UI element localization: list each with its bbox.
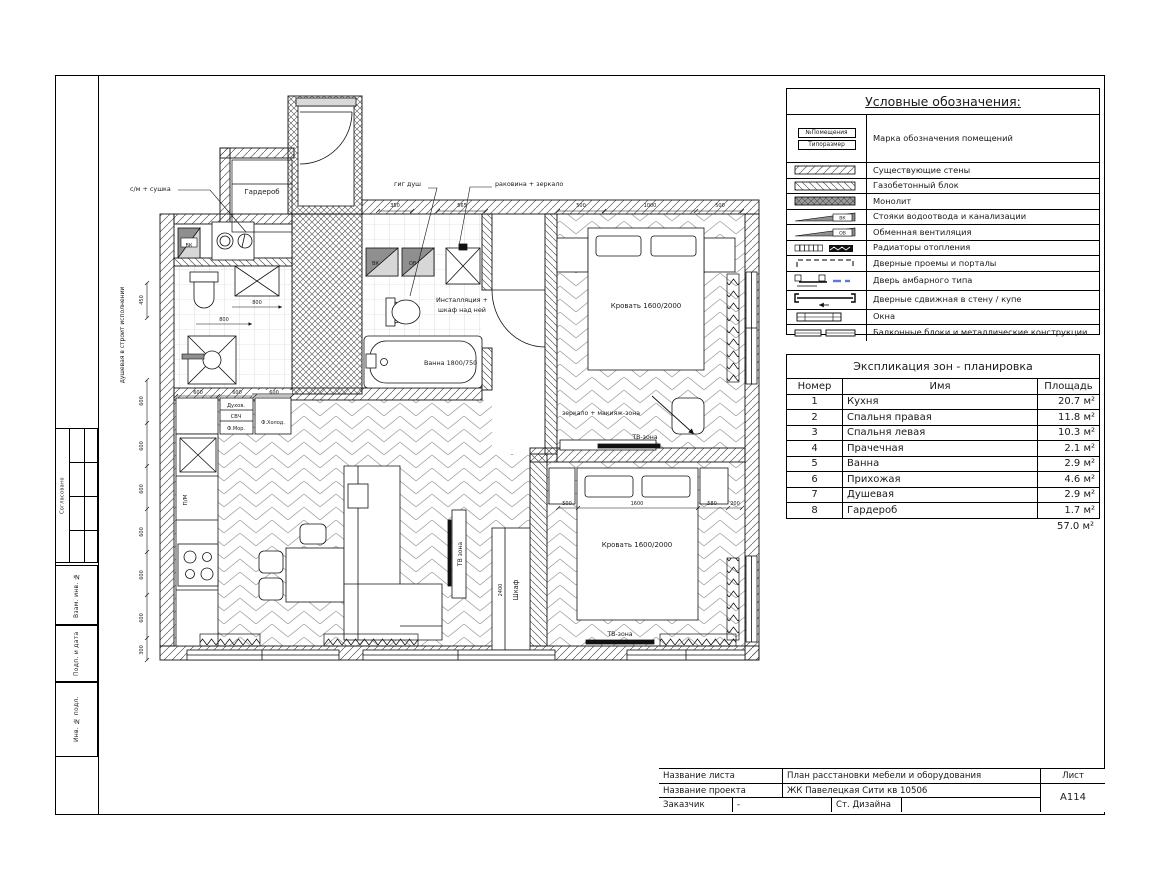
dim-565: 565 (457, 203, 467, 209)
zones-table-title: Экспликация зон - планировка (786, 354, 1100, 378)
existing-walls-icon (793, 164, 861, 176)
floor-plan: ВК (100, 78, 790, 690)
label-installation-2: шкаф над ней (438, 306, 486, 314)
sheet-name-value: План расстановки мебели и оборудования (782, 768, 1040, 783)
client-label: Заказчик (659, 797, 732, 812)
stamp-inv-box: Инв. № подл. (55, 682, 98, 757)
gasblock-icon (793, 180, 861, 192)
legend-title: Условные обозначения: (787, 89, 1099, 115)
label-oven: Духов. (227, 403, 245, 409)
dim-500-a: 500 (576, 203, 586, 209)
label-wardrobe-cab: Шкаф (512, 579, 520, 600)
legend-row-walls: Существующие стены (787, 163, 1099, 179)
legend-row-ov: ОВ Обменная вентиляция (787, 225, 1099, 241)
label-shower-note: душевая в строит исполнении (119, 287, 126, 384)
frame-margin-line (98, 75, 99, 815)
dim-600-5: 600 (139, 570, 145, 580)
legend-row-gasblock: Газобетонный блок (787, 179, 1099, 195)
label-freezer: Ф.Мор. (227, 426, 245, 432)
zones-header-row: Номер Имя Площадь (787, 379, 1100, 395)
ventilation-icon: ОВ (793, 226, 861, 238)
legend-row-sliding-door: Дверные сдвижная в стену / купе (787, 291, 1099, 310)
stamp-vzam-label: Взам. инв. № (56, 566, 97, 624)
label-mirror-makeup: зеркало + макияж-зона (562, 410, 640, 417)
table-row: 3Спальня левая10.3 м² (787, 425, 1100, 441)
dim-600-k1: 600 (193, 390, 203, 396)
stamp-approved-label: Согласовано (56, 429, 69, 562)
label-bed-left: Кровать 1600/2000 (602, 541, 673, 549)
zones-total: 57.0 м² (786, 519, 1100, 532)
zones-table: Экспликация зон - планировка Номер Имя П… (786, 354, 1100, 532)
vk-shaft-label: ВК (186, 243, 193, 249)
stamp-inv-label: Инв. № подл. (56, 683, 97, 756)
sheet-label: Лист (1040, 768, 1105, 783)
legend-row-doorways: Дверные проемы и порталы (787, 256, 1099, 272)
stamp-podp-label: Подп. и дата (56, 626, 97, 681)
dim-1000: 1000 (644, 203, 657, 209)
dim-600-k3: 600 (269, 390, 279, 396)
dim-2400: 2400 (498, 584, 504, 597)
legend-row-balcony: Балконные блоки и металлические конструк… (787, 325, 1099, 341)
doorway-icon (793, 257, 861, 269)
legend-row-monolith: Монолит (787, 194, 1099, 210)
label-dishwasher: П/М (183, 494, 189, 505)
table-row: 8Гардероб1.7 м² (787, 503, 1100, 519)
label-fridge: Ф.Холод. (261, 420, 285, 426)
legend-row-marker: №Помещения Типоразмер Марка обозначения … (787, 115, 1099, 163)
table-row: 7Душевая2.9 м² (787, 487, 1100, 503)
label-sink-mirror: раковина + зеркало (495, 180, 563, 188)
balcony-block-icon (793, 327, 861, 339)
dim-600-3: 600 (139, 484, 145, 494)
table-row: 5Ванна2.9 м² (787, 456, 1100, 472)
entry (296, 98, 356, 206)
empty-cell (901, 797, 1040, 812)
dim-350: 350 (390, 203, 400, 209)
sliding-door-icon (793, 292, 861, 308)
stamp-vzam-box: Взам. инв. № (55, 565, 98, 625)
legend-row-windows: Окна (787, 310, 1099, 326)
dim-450: 450 (139, 295, 145, 305)
dim-200: 200 (730, 501, 740, 507)
svg-text:ВК: ВК (839, 215, 846, 221)
stamp-podp-box: Подп. и дата (55, 625, 98, 682)
studio-value: Ст. Дизайна (831, 797, 901, 812)
sheet-name-label: Название листа (659, 768, 782, 783)
dim-600-k2: 600 (232, 390, 242, 396)
room-number-tag: №Помещения (798, 128, 856, 138)
dim-600-6: 600 (139, 613, 145, 623)
dim-580: 580 (707, 501, 717, 507)
table-row: 6Прихожая4.6 м² (787, 472, 1100, 488)
dim-500-c: 500 (562, 501, 572, 507)
svg-text:ОВ: ОВ (839, 231, 846, 237)
dim-600-1: 600 (139, 396, 145, 406)
project-label: Название проекта (659, 783, 782, 798)
label-washer: с/м + сушка (130, 185, 171, 193)
label-gig-shower: гиг душ (394, 180, 421, 188)
label-installation-1: Инсталляция + (436, 296, 488, 304)
table-row: 2Спальня правая11.8 м² (787, 410, 1100, 426)
dim-600-2: 600 (139, 441, 145, 451)
dim-800-a: 800 (252, 300, 262, 306)
label-tv-left: ТВ-зона (606, 631, 632, 638)
label-tv-living: ТВ зона (457, 542, 464, 567)
project-value: ЖК Павелецкая Сити кв 10506 (782, 783, 1040, 798)
label-bed-right: Кровать 1600/2000 (611, 302, 682, 310)
barn-door-icon (793, 273, 861, 289)
label-bath: Ванна 1800/750 (424, 359, 477, 367)
table-row: 1Кухня20.7 м² (787, 394, 1100, 410)
label-micro: СВЧ (231, 414, 242, 420)
dim-800-b: 800 (219, 317, 229, 323)
label-wardrobe-room: Гардероб (244, 188, 279, 196)
client-value: - (732, 797, 831, 812)
dim-1600: 1600 (631, 501, 644, 507)
legend: Условные обозначения: №Помещения Типораз… (786, 88, 1100, 335)
legend-row-radiators: Радиаторы отопления (787, 241, 1099, 257)
legend-row-barn-door: Дверь амбарного типа (787, 272, 1099, 291)
water-riser-icon: ВК (793, 211, 861, 223)
drawing-sheet: Согласовано Взам. инв. № Подп. и дата Ин… (0, 0, 1155, 893)
bath-vk-label: ВК (372, 261, 379, 267)
legend-row-vk: ВК Стояки водоотвода и канализации (787, 210, 1099, 226)
radiator-icon (793, 242, 861, 254)
bath-ov-label: ОВ (409, 261, 417, 267)
dim-300: 300 (139, 645, 145, 655)
sheet-number: А114 (1040, 783, 1105, 812)
room-size-tag: Типоразмер (798, 140, 856, 150)
table-row: 4Прачечная2.1 м² (787, 441, 1100, 457)
stamp-approved-box: Согласовано (55, 428, 98, 563)
dim-600-4: 600 (139, 527, 145, 537)
label-tv-right: ТВ-зона (631, 434, 657, 441)
dim-500-b: 500 (715, 203, 725, 209)
monolith-icon (793, 195, 861, 207)
window-icon (793, 311, 861, 323)
